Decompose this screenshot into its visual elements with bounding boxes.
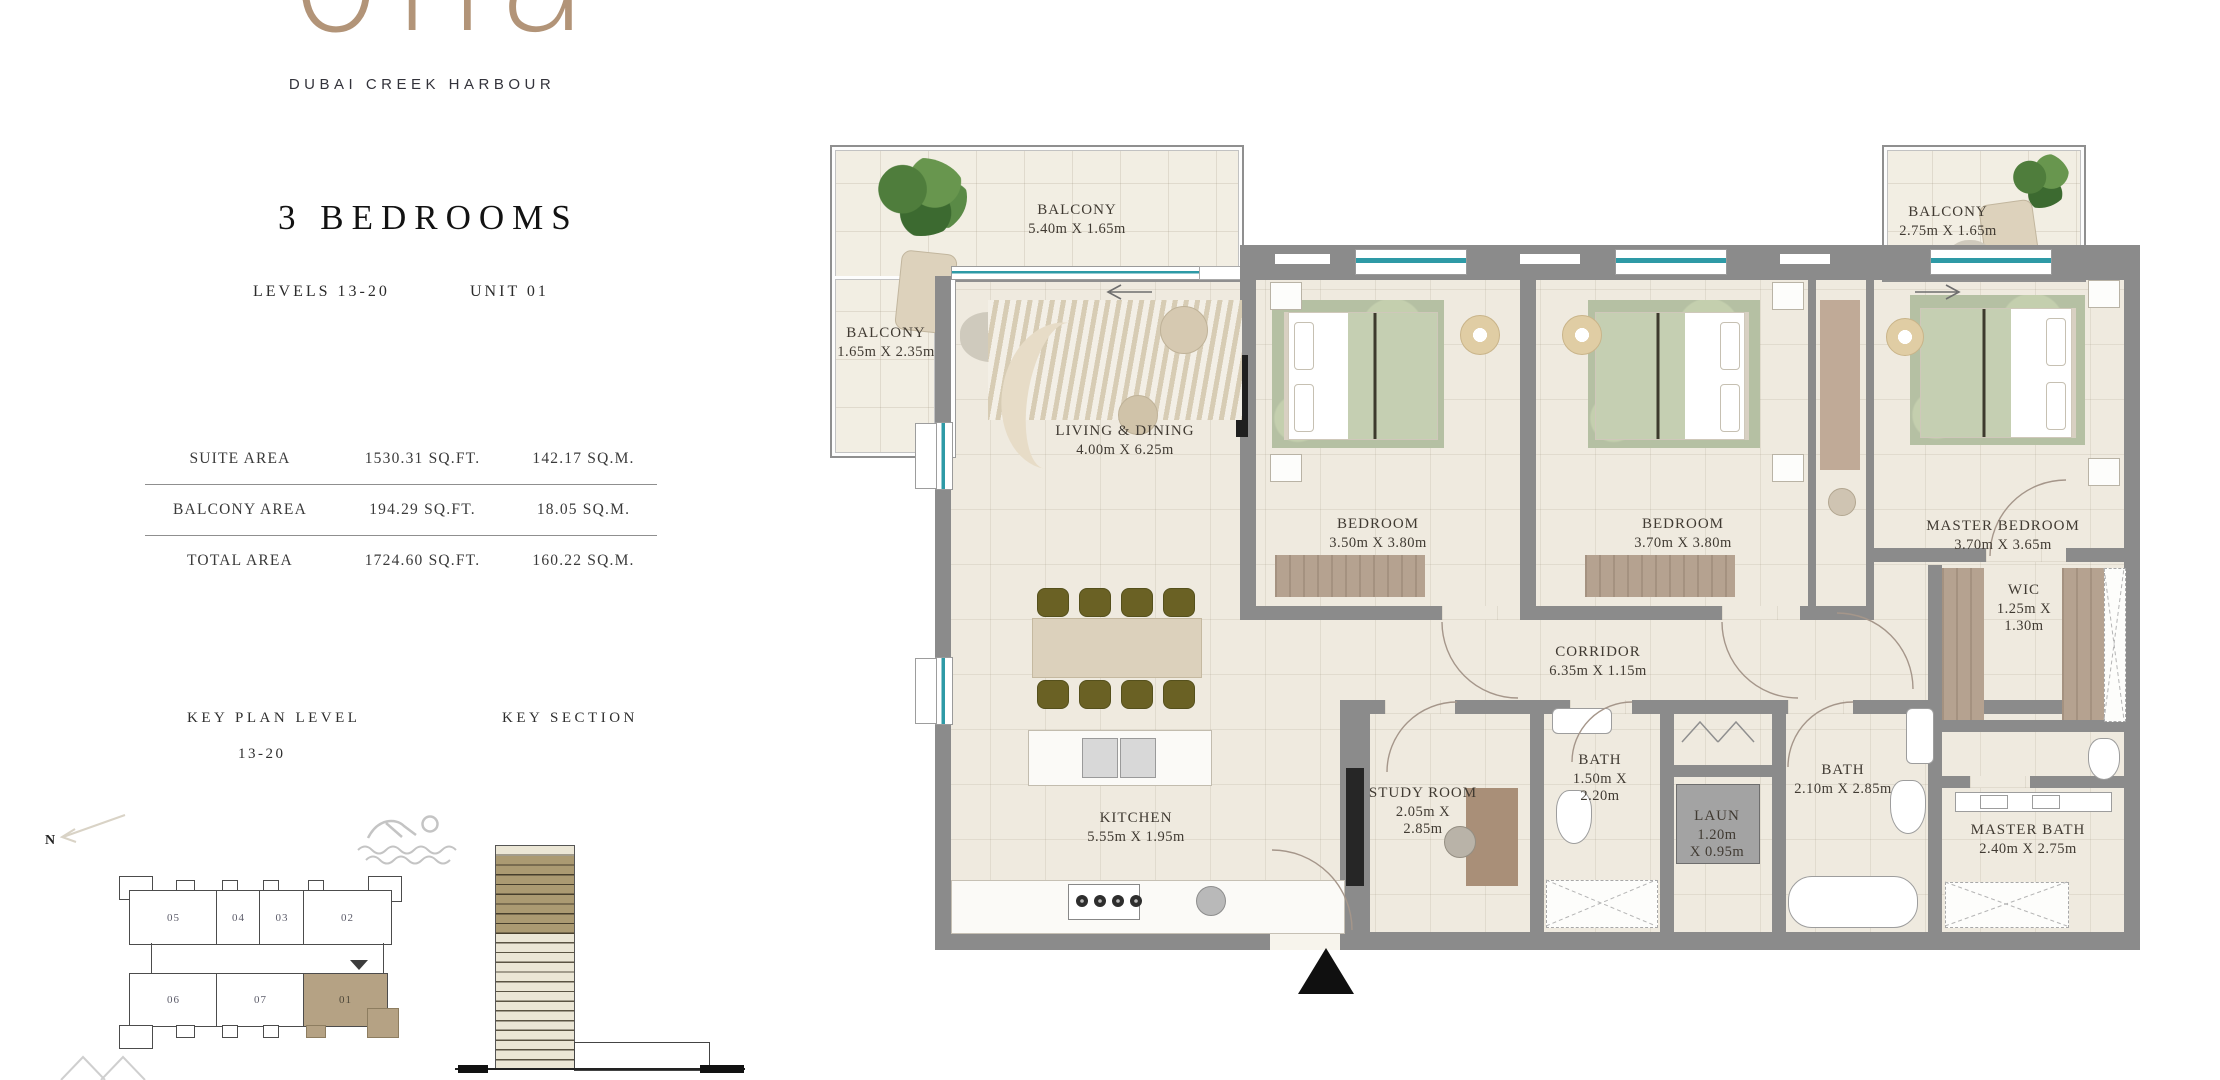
table-row: TOTAL AREA 1724.60 SQ.FT. 160.22 SQ.M. xyxy=(145,535,657,586)
brand-logo-text: ona xyxy=(290,0,599,52)
room-label-study: STUDY ROOM 2.05m X 2.85m xyxy=(1369,785,1477,838)
keyplan-unit-02: 02 xyxy=(303,890,392,945)
area-label: TOTAL AREA xyxy=(145,552,335,570)
room-label-laundry: LAUN 1.20m X 0.95m xyxy=(1690,808,1744,861)
room-label-kitchen: KITCHEN 5.55m X 1.95m xyxy=(1087,810,1185,846)
area-sqm: 142.17 SQ.M. xyxy=(510,450,657,468)
tower-elevation xyxy=(495,845,575,1069)
keyplan-unit-04: 04 xyxy=(216,890,261,945)
room-label-balcony-main: BALCONY 5.40m X 1.65m xyxy=(1028,202,1126,238)
room-label-bath2: BATH 2.10m X 2.85m xyxy=(1794,762,1892,798)
ground-stub xyxy=(458,1065,488,1073)
key-plan-level-range: 13-20 xyxy=(238,746,286,763)
keyplan-unit-06: 06 xyxy=(129,973,218,1027)
keyplan-unit-05: 05 xyxy=(129,890,218,945)
ground-stub xyxy=(700,1065,744,1073)
room-label-living: LIVING & DINING 4.00m X 6.25m xyxy=(1055,423,1194,459)
unit-number-label: UNIT 01 xyxy=(470,283,549,301)
brand-logo: ona xyxy=(270,0,630,52)
area-sqft: 1724.60 SQ.FT. xyxy=(335,552,510,570)
room-label-master-bath: MASTER BATH 2.40m X 2.75m xyxy=(1971,822,2086,858)
plan-linework xyxy=(820,140,2180,1010)
swimmer-icon xyxy=(352,810,477,870)
tower-podium xyxy=(574,1042,710,1071)
keyplan-tab xyxy=(222,1025,238,1038)
room-label-corridor: CORRIDOR 6.35m X 1.15m xyxy=(1549,644,1647,680)
keyplan-entry-marker xyxy=(348,958,370,973)
keyplan-tab xyxy=(263,1025,279,1038)
keyplan-unit-03: 03 xyxy=(259,890,305,945)
tower-highlight-levels-13-20 xyxy=(496,856,574,934)
room-label-bath1: BATH 1.50m X 2.20m xyxy=(1573,752,1627,805)
levels-label: LEVELS 13-20 xyxy=(253,283,390,301)
keyplan-tab xyxy=(306,1025,326,1038)
room-label-wic: WIC 1.25m X 1.30m xyxy=(1997,582,2051,635)
room-label-master-bedroom: MASTER BEDROOM 3.70m X 3.65m xyxy=(1926,518,2080,554)
keyplan-tab xyxy=(119,1025,153,1049)
keyplan-tab xyxy=(367,1008,399,1038)
north-label: N xyxy=(45,833,55,849)
mountains-icon xyxy=(58,1052,153,1080)
floorplan: BALCONY 5.40m X 1.65m BALCONY 1.65m X 2.… xyxy=(820,140,2180,1010)
room-label-balcony-master: BALCONY 2.75m X 1.65m xyxy=(1899,204,1997,240)
page-title: 3 BEDROOMS xyxy=(278,198,579,238)
area-sqft: 1530.31 SQ.FT. xyxy=(335,450,510,468)
area-label: SUITE AREA xyxy=(145,450,335,468)
table-row: BALCONY AREA 194.29 SQ.FT. 18.05 SQ.M. xyxy=(145,484,657,535)
keyplan-connector xyxy=(151,943,152,973)
brand-subtitle: DUBAI CREEK HARBOUR xyxy=(282,76,562,93)
table-row: SUITE AREA 1530.31 SQ.FT. 142.17 SQ.M. xyxy=(145,434,657,484)
area-label: BALCONY AREA xyxy=(145,501,335,519)
room-label-bedroom1: BEDROOM 3.50m X 3.80m xyxy=(1329,516,1427,552)
keyplan-unit-07: 07 xyxy=(216,973,305,1027)
keyplan-tab xyxy=(176,1025,195,1038)
keyplan-connector xyxy=(383,943,384,973)
area-table: SUITE AREA 1530.31 SQ.FT. 142.17 SQ.M. B… xyxy=(145,434,657,586)
area-sqm: 160.22 SQ.M. xyxy=(510,552,657,570)
area-sqft: 194.29 SQ.FT. xyxy=(335,501,510,519)
room-label-bedroom2: BEDROOM 3.70m X 3.80m xyxy=(1634,516,1732,552)
key-section-title: KEY SECTION xyxy=(502,710,638,727)
brochure-page: ona DUBAI CREEK HARBOUR 3 BEDROOMS LEVEL… xyxy=(0,0,2220,1080)
area-sqm: 18.05 SQ.M. xyxy=(510,501,657,519)
key-plan-title: KEY PLAN LEVEL xyxy=(187,710,360,727)
room-label-balcony-side: BALCONY 1.65m X 2.35m xyxy=(837,325,935,361)
